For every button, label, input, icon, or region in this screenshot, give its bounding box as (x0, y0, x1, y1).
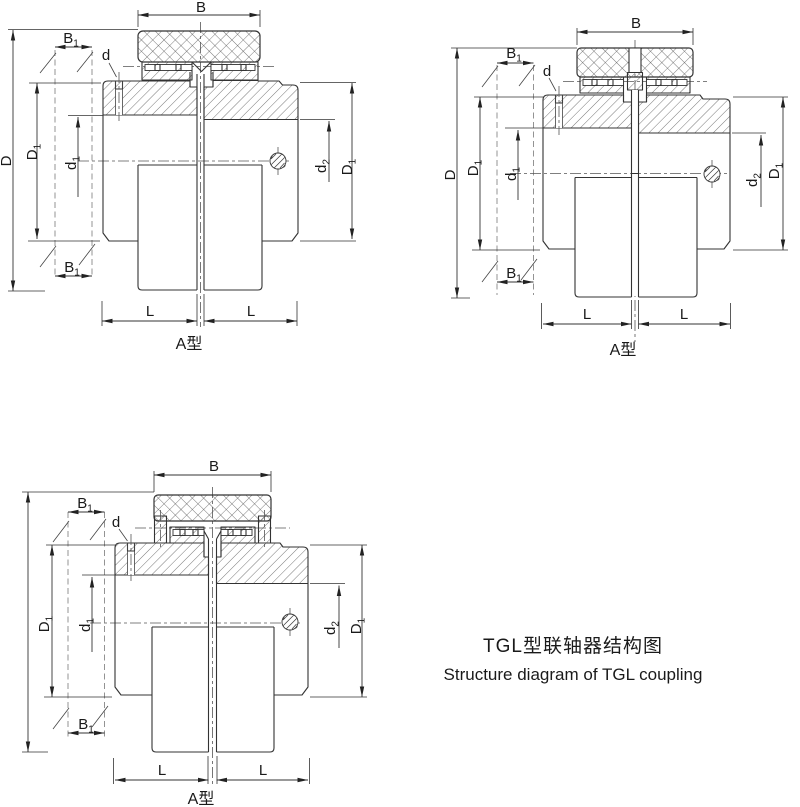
variant-label: A型 (188, 790, 215, 807)
dim-label-d1: d1 (63, 156, 83, 170)
dim-label-B1-bottom: B1 (64, 259, 80, 279)
dim-label-B1-top: B1 (77, 495, 93, 515)
variant-label: A型 (176, 335, 203, 353)
dim-label-D1-right: D1 (348, 617, 368, 634)
dim-label-B: B (631, 15, 641, 32)
dim-label-d: d (102, 47, 110, 64)
coupling-geometry (40, 22, 298, 327)
dim-label-L-left: L (146, 303, 154, 320)
diagram-a-top-left: B B1 B1 d D D1 d1 d2 D1 L L A型 (0, 0, 359, 353)
drawing-page: B B1 B1 d D D1 d1 d2 D1 L L A型 (0, 0, 800, 807)
dim-label-d: d (112, 514, 120, 531)
dim-label-D1-left: D1 (24, 143, 44, 160)
dim-label-d2: d2 (313, 159, 333, 173)
dim-label-L-right: L (680, 306, 688, 323)
technical-drawing-canvas: B B1 B1 d D D1 d1 d2 D1 L L A型 (0, 0, 800, 807)
dim-label-L-right: L (247, 303, 255, 320)
dim-label-D1-left: D1 (465, 159, 485, 176)
dim-label-L-left: L (583, 306, 591, 323)
dim-label-B: B (196, 0, 206, 16)
coupling-geometry (482, 40, 730, 342)
figure-caption: TGL型联轴器结构图 Structure diagram of TGL coup… (420, 631, 726, 685)
dim-label-d: d (543, 63, 551, 80)
dim-label-B1-bottom: B1 (78, 716, 94, 736)
dim-label-D1-left: D1 (36, 615, 56, 632)
dim-label-D: D (442, 169, 459, 180)
dim-label-B1-bottom: B1 (506, 265, 522, 285)
diagram-a-bottom-left: B B1 B1 d D1 d1 d2 D1 L L A型 (22, 458, 368, 807)
dim-label-B: B (209, 458, 219, 475)
dim-label-D1-right: D1 (766, 162, 786, 179)
dim-label-B1-top: B1 (63, 30, 79, 50)
dim-label-L-right: L (259, 762, 267, 779)
caption-english: Structure diagram of TGL coupling (420, 665, 726, 685)
dim-label-d1: d1 (503, 167, 523, 181)
variant-label: A型 (610, 341, 637, 359)
dim-label-d2: d2 (322, 621, 342, 635)
dim-label-D: D (0, 155, 15, 166)
dim-label-d1: d1 (77, 618, 97, 632)
caption-chinese: TGL型联轴器结构图 (420, 631, 726, 658)
diagram-a-top-right: B B1 B1 d D D1 d1 d2 D1 L L A型 (442, 15, 788, 359)
dim-label-D1-right: D1 (339, 158, 359, 175)
dim-label-L-left: L (158, 762, 166, 779)
coupling-geometry (53, 487, 308, 784)
dim-label-d2: d2 (744, 173, 764, 187)
